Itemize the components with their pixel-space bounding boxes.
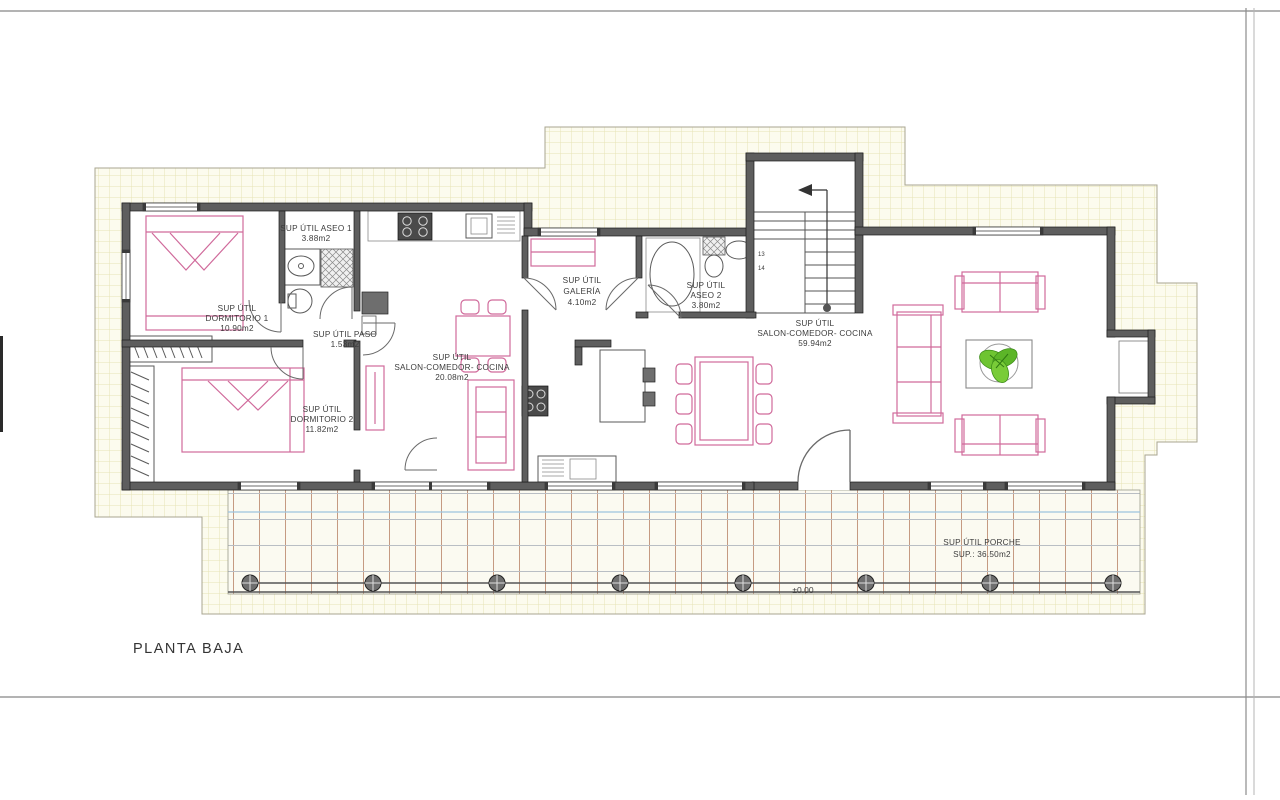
svg-text:4.10m2: 4.10m2 xyxy=(568,298,597,307)
svg-text:SUP ÚTIL: SUP ÚTIL xyxy=(796,318,835,328)
window xyxy=(372,482,490,490)
svg-text:3.80m2: 3.80m2 xyxy=(692,301,721,310)
svg-text:SUP ÚTIL ASEO 1: SUP ÚTIL ASEO 1 xyxy=(280,223,352,233)
svg-text:DORMITORIO 2: DORMITORIO 2 xyxy=(291,415,354,424)
svg-text:SUP ÚTIL PASO: SUP ÚTIL PASO xyxy=(313,329,377,339)
window xyxy=(928,482,986,490)
stove-1 xyxy=(398,213,432,240)
svg-text:DORMITORIO 1: DORMITORIO 1 xyxy=(206,314,269,323)
svg-text:11.82m2: 11.82m2 xyxy=(305,425,338,434)
svg-text:ASEO 2: ASEO 2 xyxy=(690,291,721,300)
window xyxy=(122,250,130,302)
stair-step-number: 13 xyxy=(758,252,765,258)
svg-text:SUP ÚTIL: SUP ÚTIL xyxy=(303,404,342,414)
shower-tray xyxy=(321,249,353,287)
svg-text:20.08m2: 20.08m2 xyxy=(435,373,469,382)
window xyxy=(538,228,600,236)
stair-step-number: 14 xyxy=(758,266,765,272)
svg-text:SUP ÚTIL: SUP ÚTIL xyxy=(433,352,472,362)
svg-text:SUP ÚTIL: SUP ÚTIL xyxy=(218,303,257,313)
svg-text:GALERÍA: GALERÍA xyxy=(563,286,601,296)
window xyxy=(143,203,200,211)
window xyxy=(655,482,745,490)
window xyxy=(238,482,300,490)
svg-text:SALON-COMEDOR- COCINA: SALON-COMEDOR- COCINA xyxy=(757,329,873,338)
window xyxy=(1005,482,1085,490)
level-mark: ±0.00 xyxy=(792,585,813,595)
label-aseo2: SUP ÚTIL ASEO 2 3.80m2 xyxy=(687,280,726,310)
svg-text:SUP.: 36.50m2: SUP.: 36.50m2 xyxy=(953,550,1011,559)
svg-text:1.53m2: 1.53m2 xyxy=(331,340,360,349)
svg-text:3.88m2: 3.88m2 xyxy=(302,234,331,243)
svg-text:SUP ÚTIL PORCHE: SUP ÚTIL PORCHE xyxy=(943,537,1021,547)
window xyxy=(973,227,1043,235)
floor-plan-canvas: 13 14 xyxy=(0,0,1280,800)
svg-text:SUP ÚTIL: SUP ÚTIL xyxy=(687,280,726,290)
label-galeria: SUP ÚTIL GALERÍA 4.10m2 xyxy=(563,275,602,307)
svg-text:59.94m2: 59.94m2 xyxy=(798,339,832,348)
svg-text:SALON-COMEDOR- COCINA: SALON-COMEDOR- COCINA xyxy=(394,363,510,372)
window xyxy=(545,482,615,490)
svg-text:SUP ÚTIL: SUP ÚTIL xyxy=(563,275,602,285)
svg-text:10.90m2: 10.90m2 xyxy=(220,324,254,333)
drawing-title: PLANTA BAJA xyxy=(133,641,244,657)
